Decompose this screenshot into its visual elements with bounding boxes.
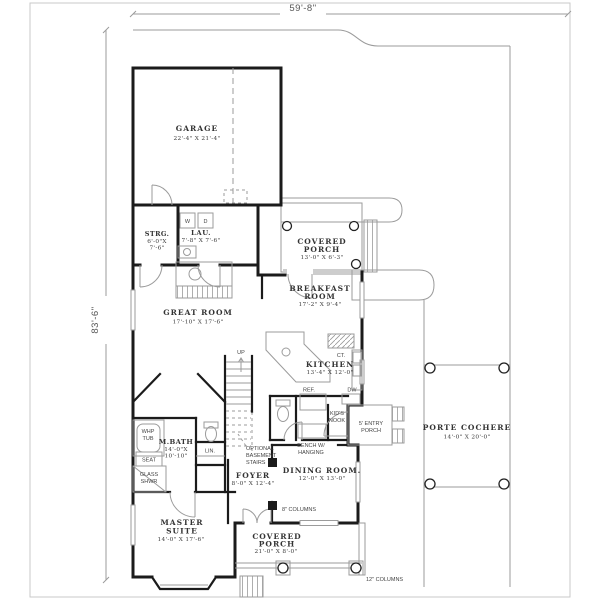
cooktop-icon (328, 334, 354, 348)
upper-porch-label-2: PORCH (304, 245, 340, 254)
great-room-dims: 17'-10" X 17'-6" (173, 320, 224, 326)
dining-dims: 12'-0" X 13'-0" (299, 476, 346, 482)
porte-cochere-dims: 14'-0" X 20'-0" (444, 435, 491, 441)
bench-label-1: BENCH W/ (297, 443, 325, 449)
master-bath-label: M.BATH (159, 438, 194, 446)
kitchen-dims: 13'-4" X 12'-0" (307, 370, 354, 376)
bench-label-2: HANGING (298, 450, 324, 456)
whirlpool-label-2: TUB (143, 436, 154, 442)
lower-porch-dims: 21'-0" X 8'-0" (255, 549, 298, 555)
optional-stairs-label-2: BASEMENT (246, 453, 277, 459)
garage-dims: 22'-4" X 21'-4" (174, 136, 221, 142)
master-suite-dims: 14'-0" X 17'-6" (158, 537, 205, 543)
breakfast-dims: 17'-2" X 9'-4" (299, 302, 342, 308)
dining-label: DINING ROOM. (283, 466, 361, 475)
linen-label: LIN. (205, 449, 216, 455)
washer-label: W (185, 219, 191, 225)
kitchen-label: KITCHEN (306, 360, 354, 369)
glass-shower-label-1: GLASS (140, 472, 159, 478)
whirlpool-label-1: WHP (142, 429, 155, 435)
storage-dims-2: 7'-6" (149, 246, 164, 252)
dryer-label: D (204, 219, 208, 225)
porte-cochere-label: PORTE COCHERE (423, 423, 511, 432)
kids-nook-label-2: NOOK (329, 418, 346, 424)
floor-plan: 59'-8" 83'-6" GARAGE 22'-4" X 21'-4" STR… (0, 0, 600, 600)
master-bath-dims-2: 10'-10" (164, 454, 187, 460)
dishwasher-label: DW (347, 388, 357, 394)
foyer-dims: 8'-0" X 12'-4" (232, 481, 275, 487)
up-label: UP (237, 350, 245, 356)
laundry-dims: 7'-8" X 7'-6" (182, 238, 221, 244)
kids-nook-label-1: KID'S (330, 411, 344, 417)
optional-stairs-label-1: OPTIONAL (246, 446, 274, 452)
floor-plan-canvas: 59'-8" 83'-6" GARAGE 22'-4" X 21'-4" STR… (0, 0, 600, 600)
glass-shower-label-2: SHWR (141, 479, 158, 485)
front-steps (240, 576, 263, 597)
garage-label: GARAGE (176, 124, 218, 133)
refrigerator-label: REF. (303, 388, 315, 394)
master-bath-dims-1: 14'-0"X (164, 447, 188, 453)
laundry-label: LAU. (191, 229, 211, 237)
width-dimension-label: 59'-8" (289, 3, 316, 14)
seat-label: SEAT (142, 458, 157, 464)
master-suite-label-2: SUITE (166, 527, 198, 536)
optional-stairs-label-3: STAIRS (246, 460, 266, 466)
breakfast-label-2: ROOM (304, 292, 336, 301)
storage-dims-1: 6'-0"X (147, 239, 167, 245)
rear-stoop (281, 198, 402, 222)
upper-porch-dims: 13'-0" X 6'-3" (301, 255, 344, 261)
columns-12-label: 12" COLUMNS (366, 577, 403, 583)
lower-porch-label-2: PORCH (259, 540, 295, 549)
storage-label: STRG. (145, 230, 170, 238)
porch-steps (364, 220, 377, 272)
entry-porch-label-2: PORCH (361, 428, 381, 434)
great-room-label: GREAT ROOM (163, 308, 233, 317)
rear-steps (176, 286, 232, 298)
entry-porch-label-1: 5' ENTRY (359, 421, 384, 427)
height-dimension-label: 83'-6" (90, 306, 101, 333)
foyer-label: FOYER (236, 471, 270, 480)
cooktop-label: CT. (337, 353, 346, 359)
columns-8-label: 8" COLUMNS (282, 507, 316, 513)
